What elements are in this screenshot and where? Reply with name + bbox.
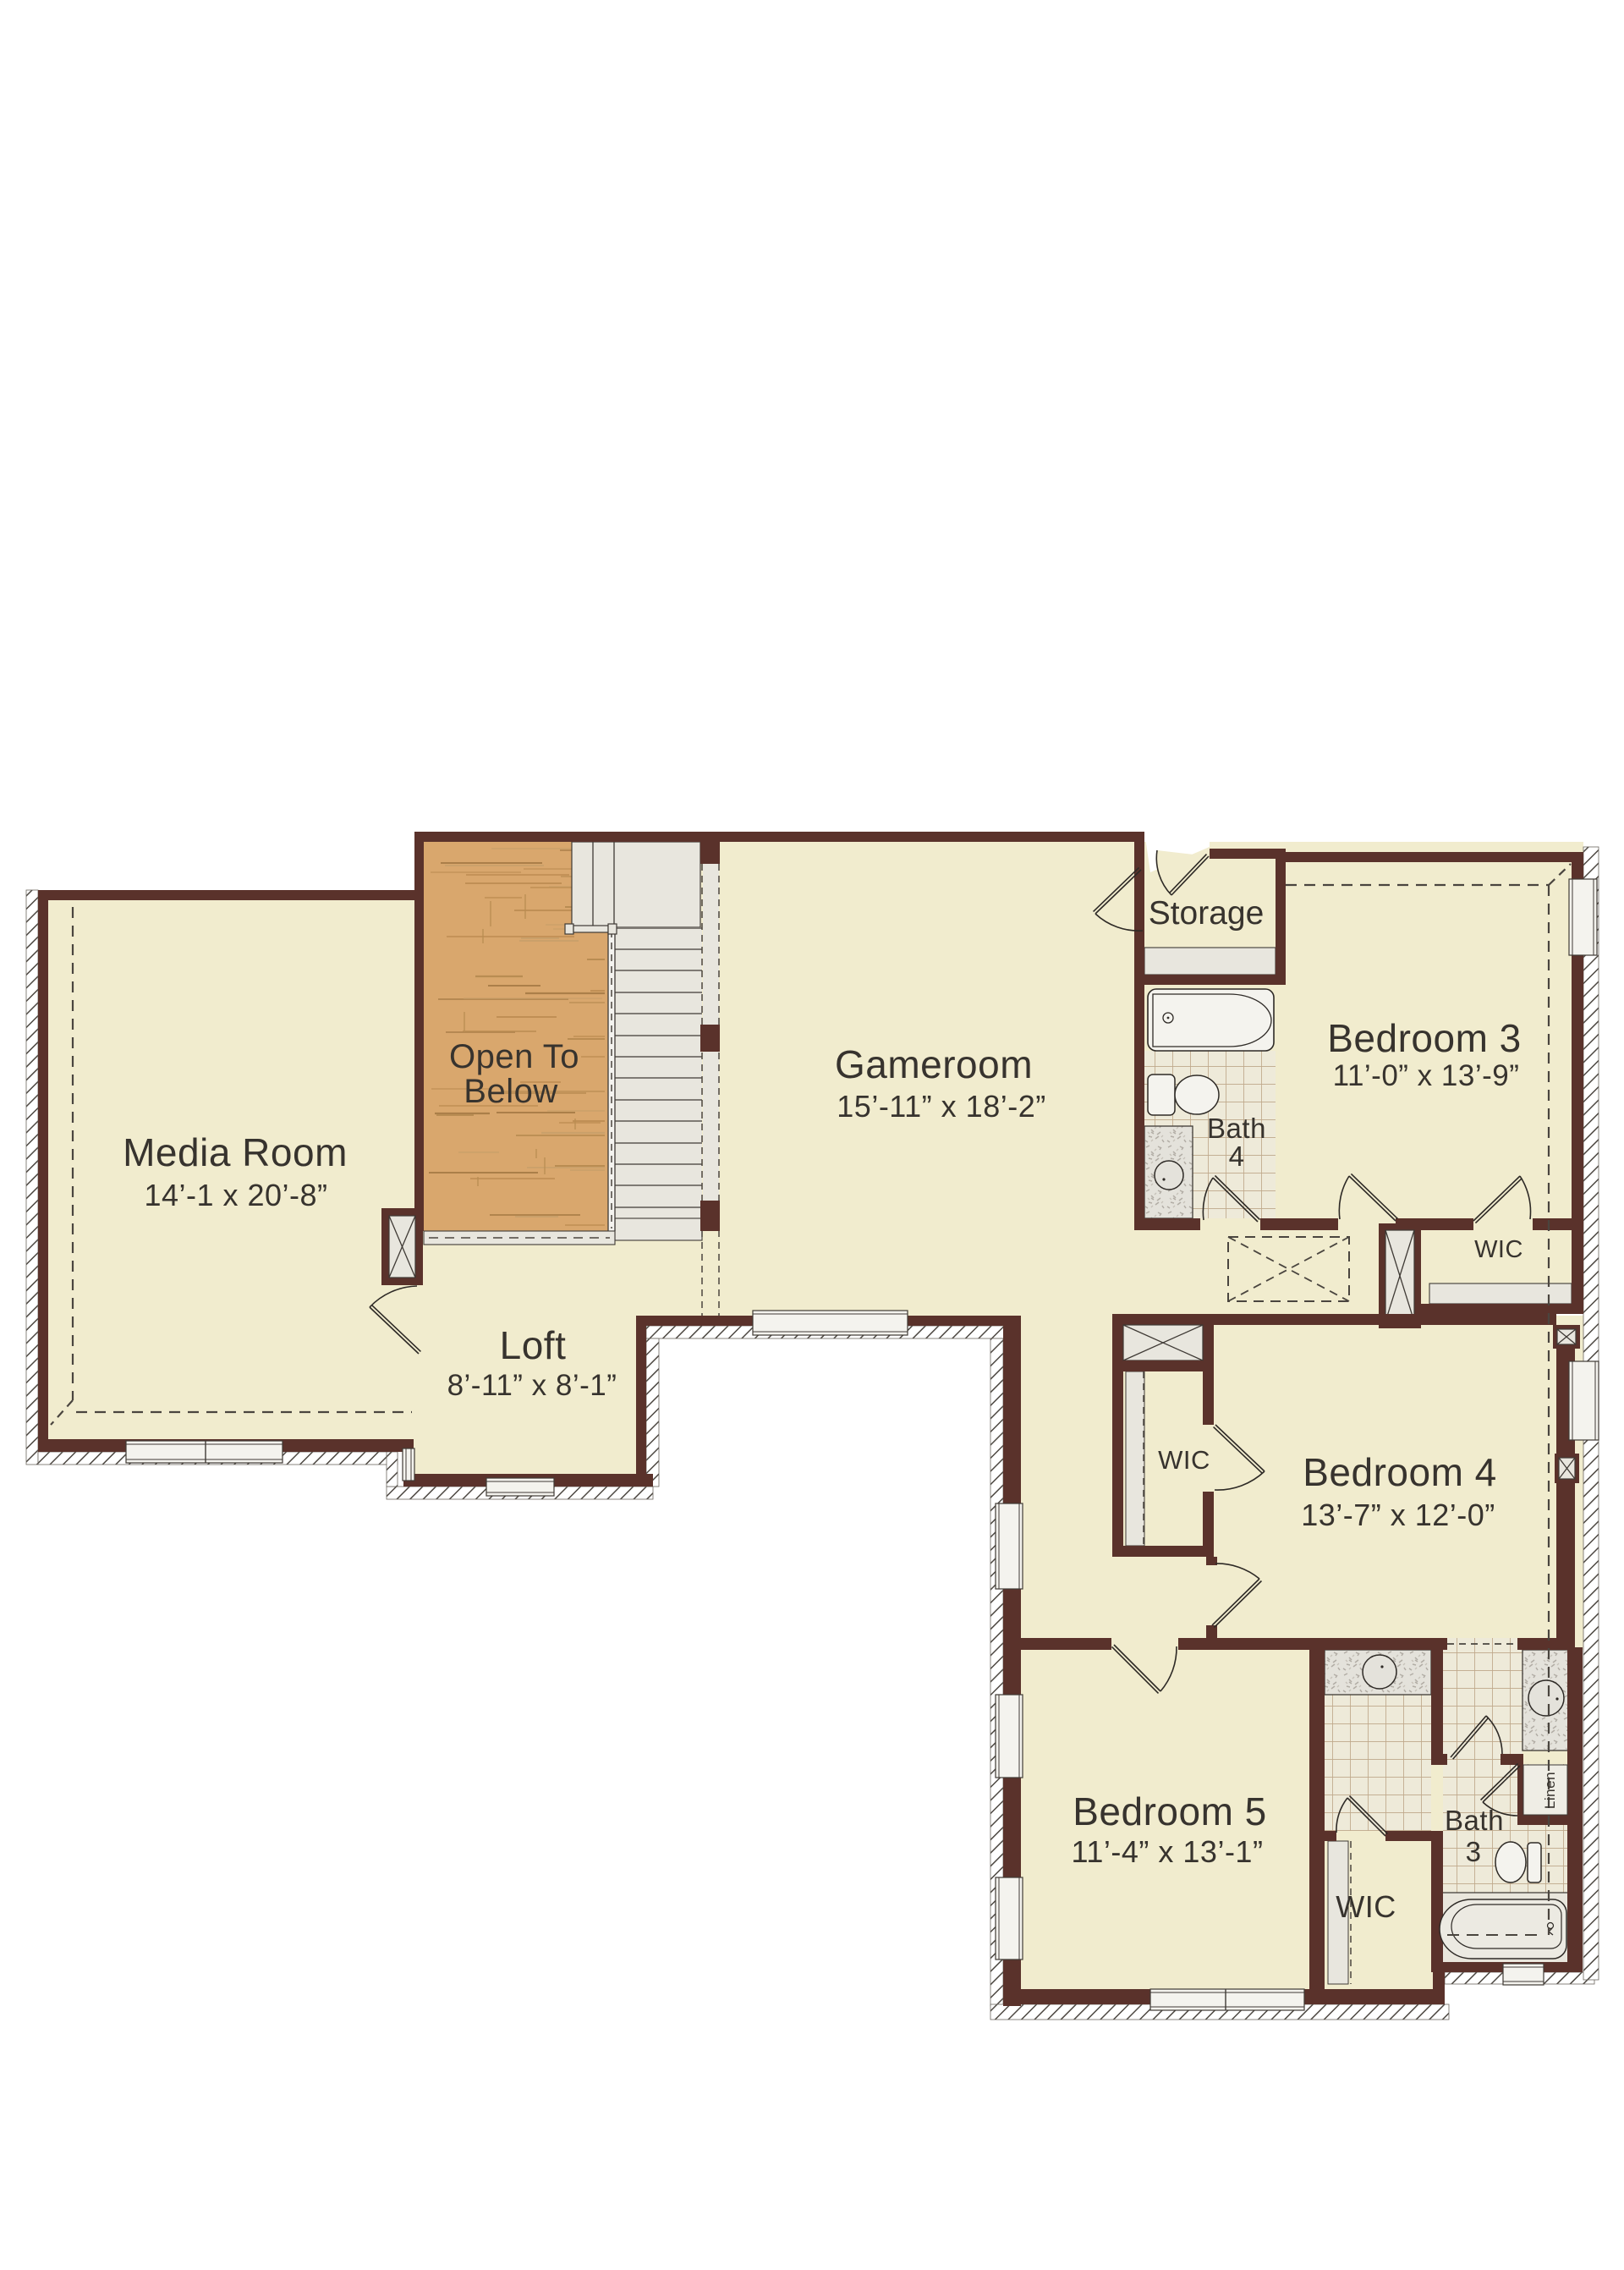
svg-text:Bath: Bath [1207,1113,1266,1144]
svg-text:WIC: WIC [1336,1889,1396,1924]
svg-text:Bedroom 3: Bedroom 3 [1327,1016,1522,1060]
svg-text:3: 3 [1466,1836,1482,1867]
svg-text:Storage: Storage [1149,895,1265,932]
svg-text:Open To: Open To [449,1038,579,1075]
svg-text:WIC: WIC [1474,1236,1523,1263]
svg-text:Gameroom: Gameroom [835,1042,1033,1086]
svg-text:14’-1 x 20’-8”: 14’-1 x 20’-8” [144,1178,327,1212]
svg-text:Linen: Linen [1542,1772,1558,1809]
svg-text:Bath: Bath [1445,1805,1504,1836]
svg-text:Bedroom 5: Bedroom 5 [1073,1789,1267,1833]
svg-text:Below: Below [464,1073,557,1110]
svg-text:11’-4” x 13’-1”: 11’-4” x 13’-1” [1072,1834,1264,1869]
svg-text:Loft: Loft [500,1323,567,1367]
svg-text:Bedroom 4: Bedroom 4 [1303,1450,1497,1494]
svg-text:WIC: WIC [1158,1445,1210,1475]
svg-text:15’-11” x 18’-2”: 15’-11” x 18’-2” [837,1089,1045,1124]
svg-text:8’-11” x 8’-1”: 8’-11” x 8’-1” [447,1369,617,1402]
svg-text:11’-0” x 13’-9”: 11’-0” x 13’-9” [1333,1059,1520,1092]
svg-text:13’-7” x 12’-0”: 13’-7” x 12’-0” [1301,1498,1495,1532]
svg-text:4: 4 [1229,1140,1245,1172]
svg-text:Media Room: Media Room [123,1130,348,1174]
